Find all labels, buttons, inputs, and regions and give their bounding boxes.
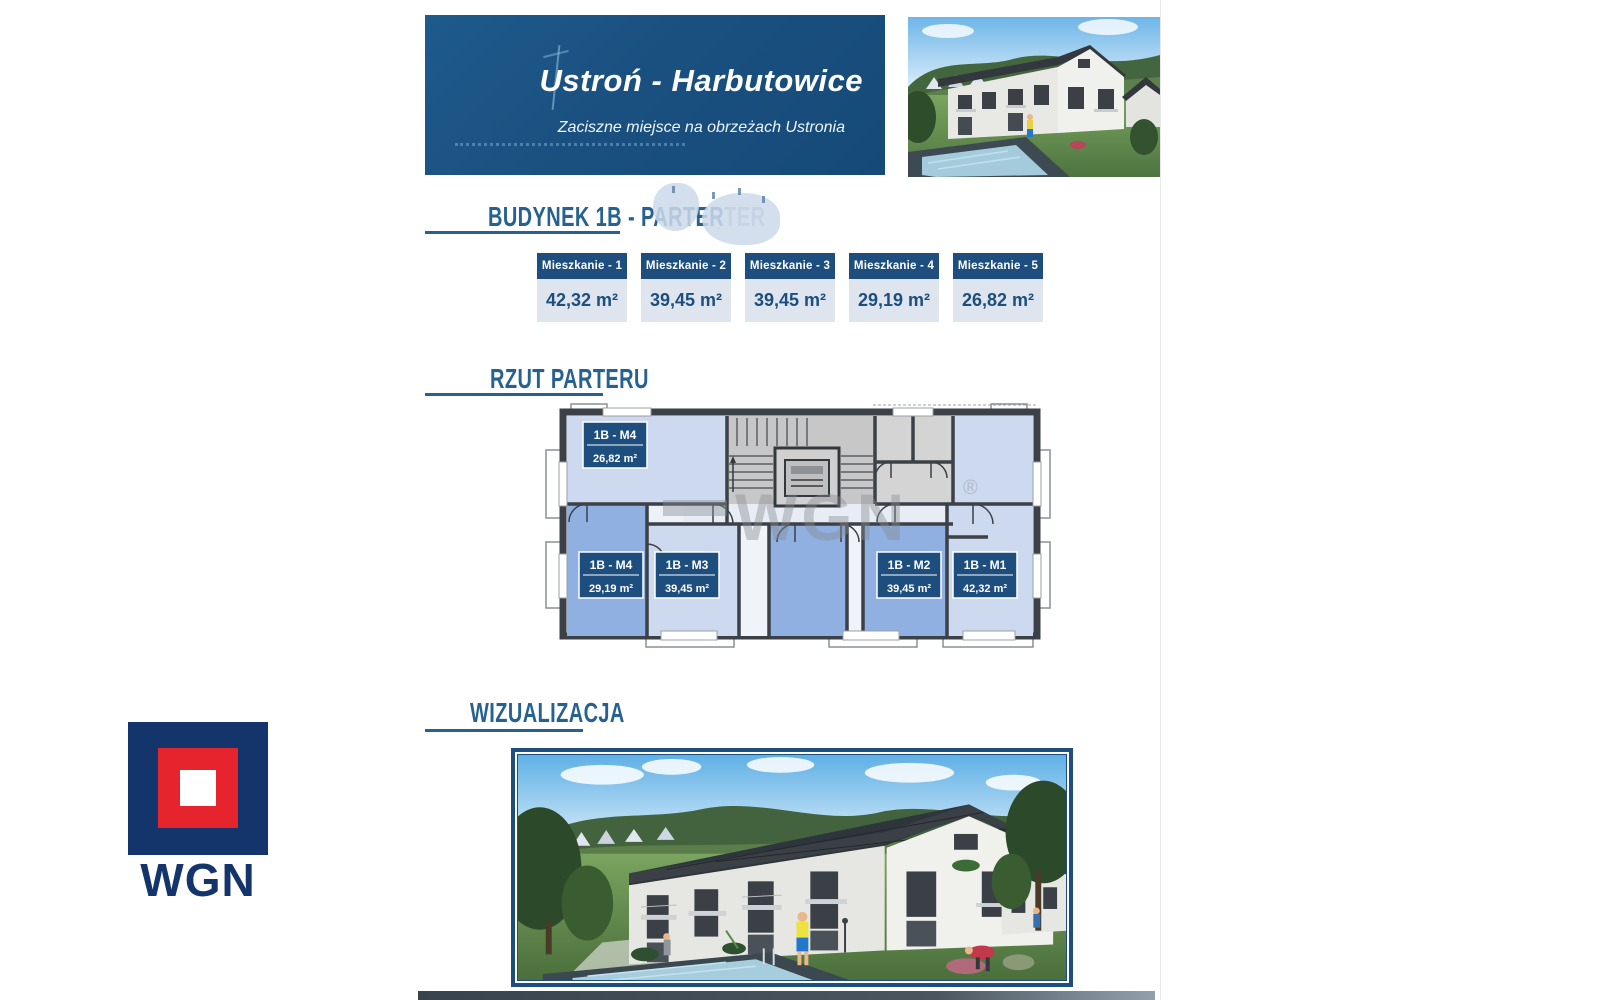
room-area: 29,19 m²	[589, 583, 633, 595]
section-underline-visualization	[425, 729, 583, 732]
header-photo-scene	[908, 17, 1160, 177]
room-area: 42,32 m²	[963, 583, 1007, 595]
apartment-card-2: Mieszkanie - 2 39,45 m²	[641, 253, 731, 322]
floorplan-svg: WGN ® 1B - M4 26,82 m² 1B - M4 29,19 m²	[543, 402, 1053, 650]
apartment-card-4: Mieszkanie - 4 29,19 m²	[849, 253, 939, 322]
watermark-text: WGN	[735, 480, 908, 554]
room-label-m3: 1B - M3 39,45 m²	[655, 552, 719, 598]
apartment-name: Mieszkanie - 4	[849, 253, 939, 279]
visualization-image	[517, 754, 1067, 981]
room-label-m2: 1B - M2 39,45 m²	[877, 552, 941, 598]
scan-speck	[738, 188, 741, 195]
scan-speck	[762, 196, 765, 203]
apartment-area: 39,45 m²	[745, 279, 835, 322]
floorplan-drawing: WGN ® 1B - M4 26,82 m² 1B - M4 29,19 m²	[543, 402, 1053, 650]
watermark-reg: ®	[963, 477, 978, 499]
section-underline-floorplan	[425, 393, 603, 396]
apartment-name: Mieszkanie - 1	[537, 253, 627, 279]
header-photo	[908, 17, 1160, 177]
section-title-visualization: WIZUALIZACJA	[470, 698, 625, 730]
apartment-name: Mieszkanie - 2	[641, 253, 731, 279]
room-label-m1: 1B - M1 42,32 m²	[953, 552, 1017, 598]
scan-speck	[672, 186, 675, 193]
visualization-frame	[511, 748, 1073, 987]
apartment-name: Mieszkanie - 5	[953, 253, 1043, 279]
room-area: 39,45 m²	[887, 583, 931, 595]
scan-page-edge	[1160, 0, 1161, 1000]
wgn-logo-text: WGN	[122, 853, 274, 907]
apartment-area: 29,19 m²	[849, 279, 939, 322]
room-area: 26,82 m²	[593, 453, 637, 465]
wgn-logo-mark	[128, 722, 268, 855]
room-area: 39,45 m²	[665, 583, 709, 595]
room-name: 1B - M2	[888, 558, 931, 572]
room-label-m4: 1B - M4 29,19 m²	[579, 552, 643, 598]
wgn-logo-red-square	[158, 748, 238, 828]
page-bottom-strip	[418, 991, 1155, 1000]
apartment-area: 26,82 m²	[953, 279, 1043, 322]
scan-scratch	[455, 143, 685, 146]
scan-speck	[712, 192, 715, 199]
section-title-floorplan: RZUT PARTERU	[490, 364, 649, 396]
room-name: 1B - M3	[666, 558, 709, 572]
project-title: Ustroń - Harbutowice	[540, 63, 863, 99]
scan-smudge	[702, 193, 780, 245]
scan-scratch	[543, 50, 569, 58]
room-name: 1B - M4	[594, 428, 637, 442]
apartment-card-3: Mieszkanie - 3 39,45 m²	[745, 253, 835, 322]
apartment-card-5: Mieszkanie - 5 26,82 m²	[953, 253, 1043, 322]
section-underline-apartments	[425, 231, 620, 234]
apartment-card-1: Mieszkanie - 1 42,32 m²	[537, 253, 627, 322]
brochure-page: Ustroń - Harbutowice Zaciszne miejsce na…	[0, 0, 1600, 1000]
header-banner: Ustroń - Harbutowice Zaciszne miejsce na…	[425, 15, 885, 175]
room-name: 1B - M1	[964, 558, 1007, 572]
apartment-area: 39,45 m²	[641, 279, 731, 322]
apartment-name: Mieszkanie - 3	[745, 253, 835, 279]
room-label-m5: 1B - M4 26,82 m²	[583, 422, 647, 468]
room-name: 1B - M4	[590, 558, 633, 572]
visualization-scene	[518, 755, 1067, 981]
project-subtitle: Zaciszne miejsce na obrzeżach Ustronia	[558, 119, 845, 137]
apartment-area: 42,32 m²	[537, 279, 627, 322]
wgn-logo-white-square	[180, 770, 216, 806]
